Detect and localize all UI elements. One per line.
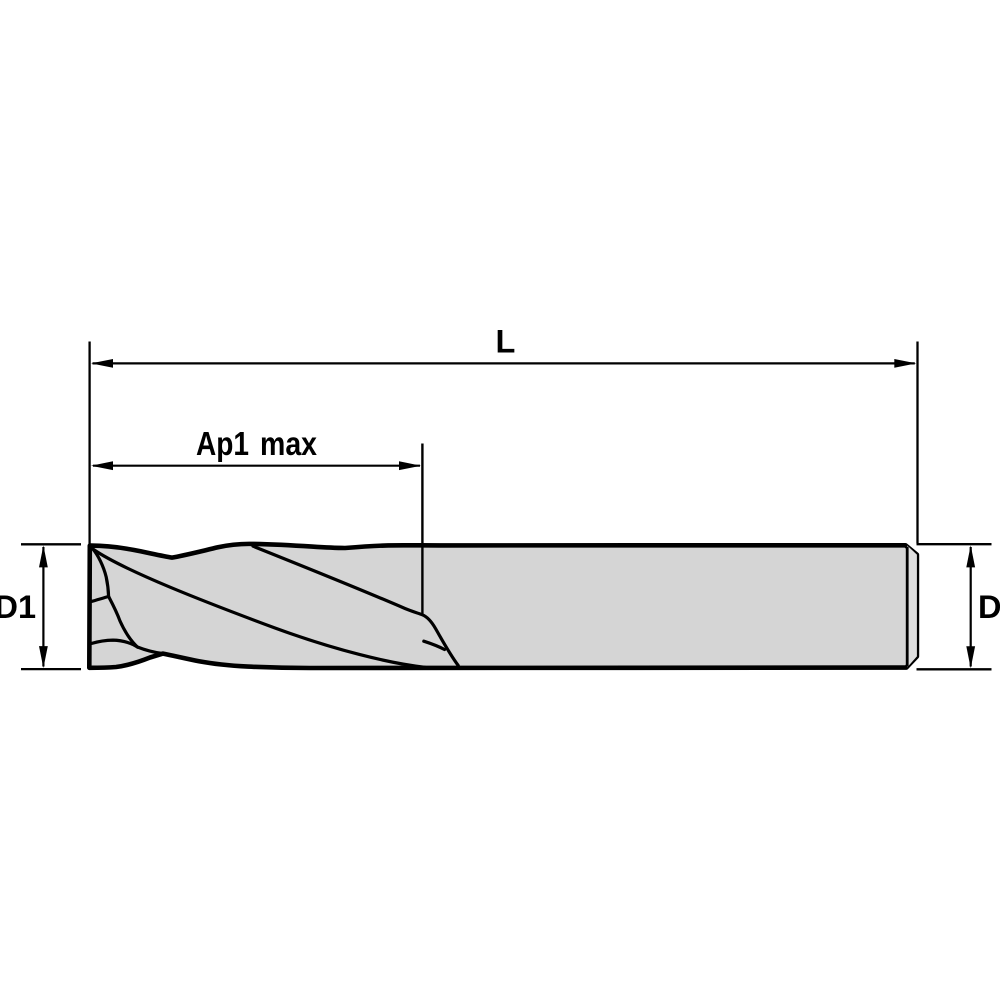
svg-text:L: L	[496, 323, 516, 359]
svg-text:max: max	[260, 425, 318, 462]
svg-text:D1: D1	[0, 589, 36, 625]
svg-text:Ap1: Ap1	[196, 425, 249, 462]
svg-text:D: D	[978, 589, 1000, 625]
